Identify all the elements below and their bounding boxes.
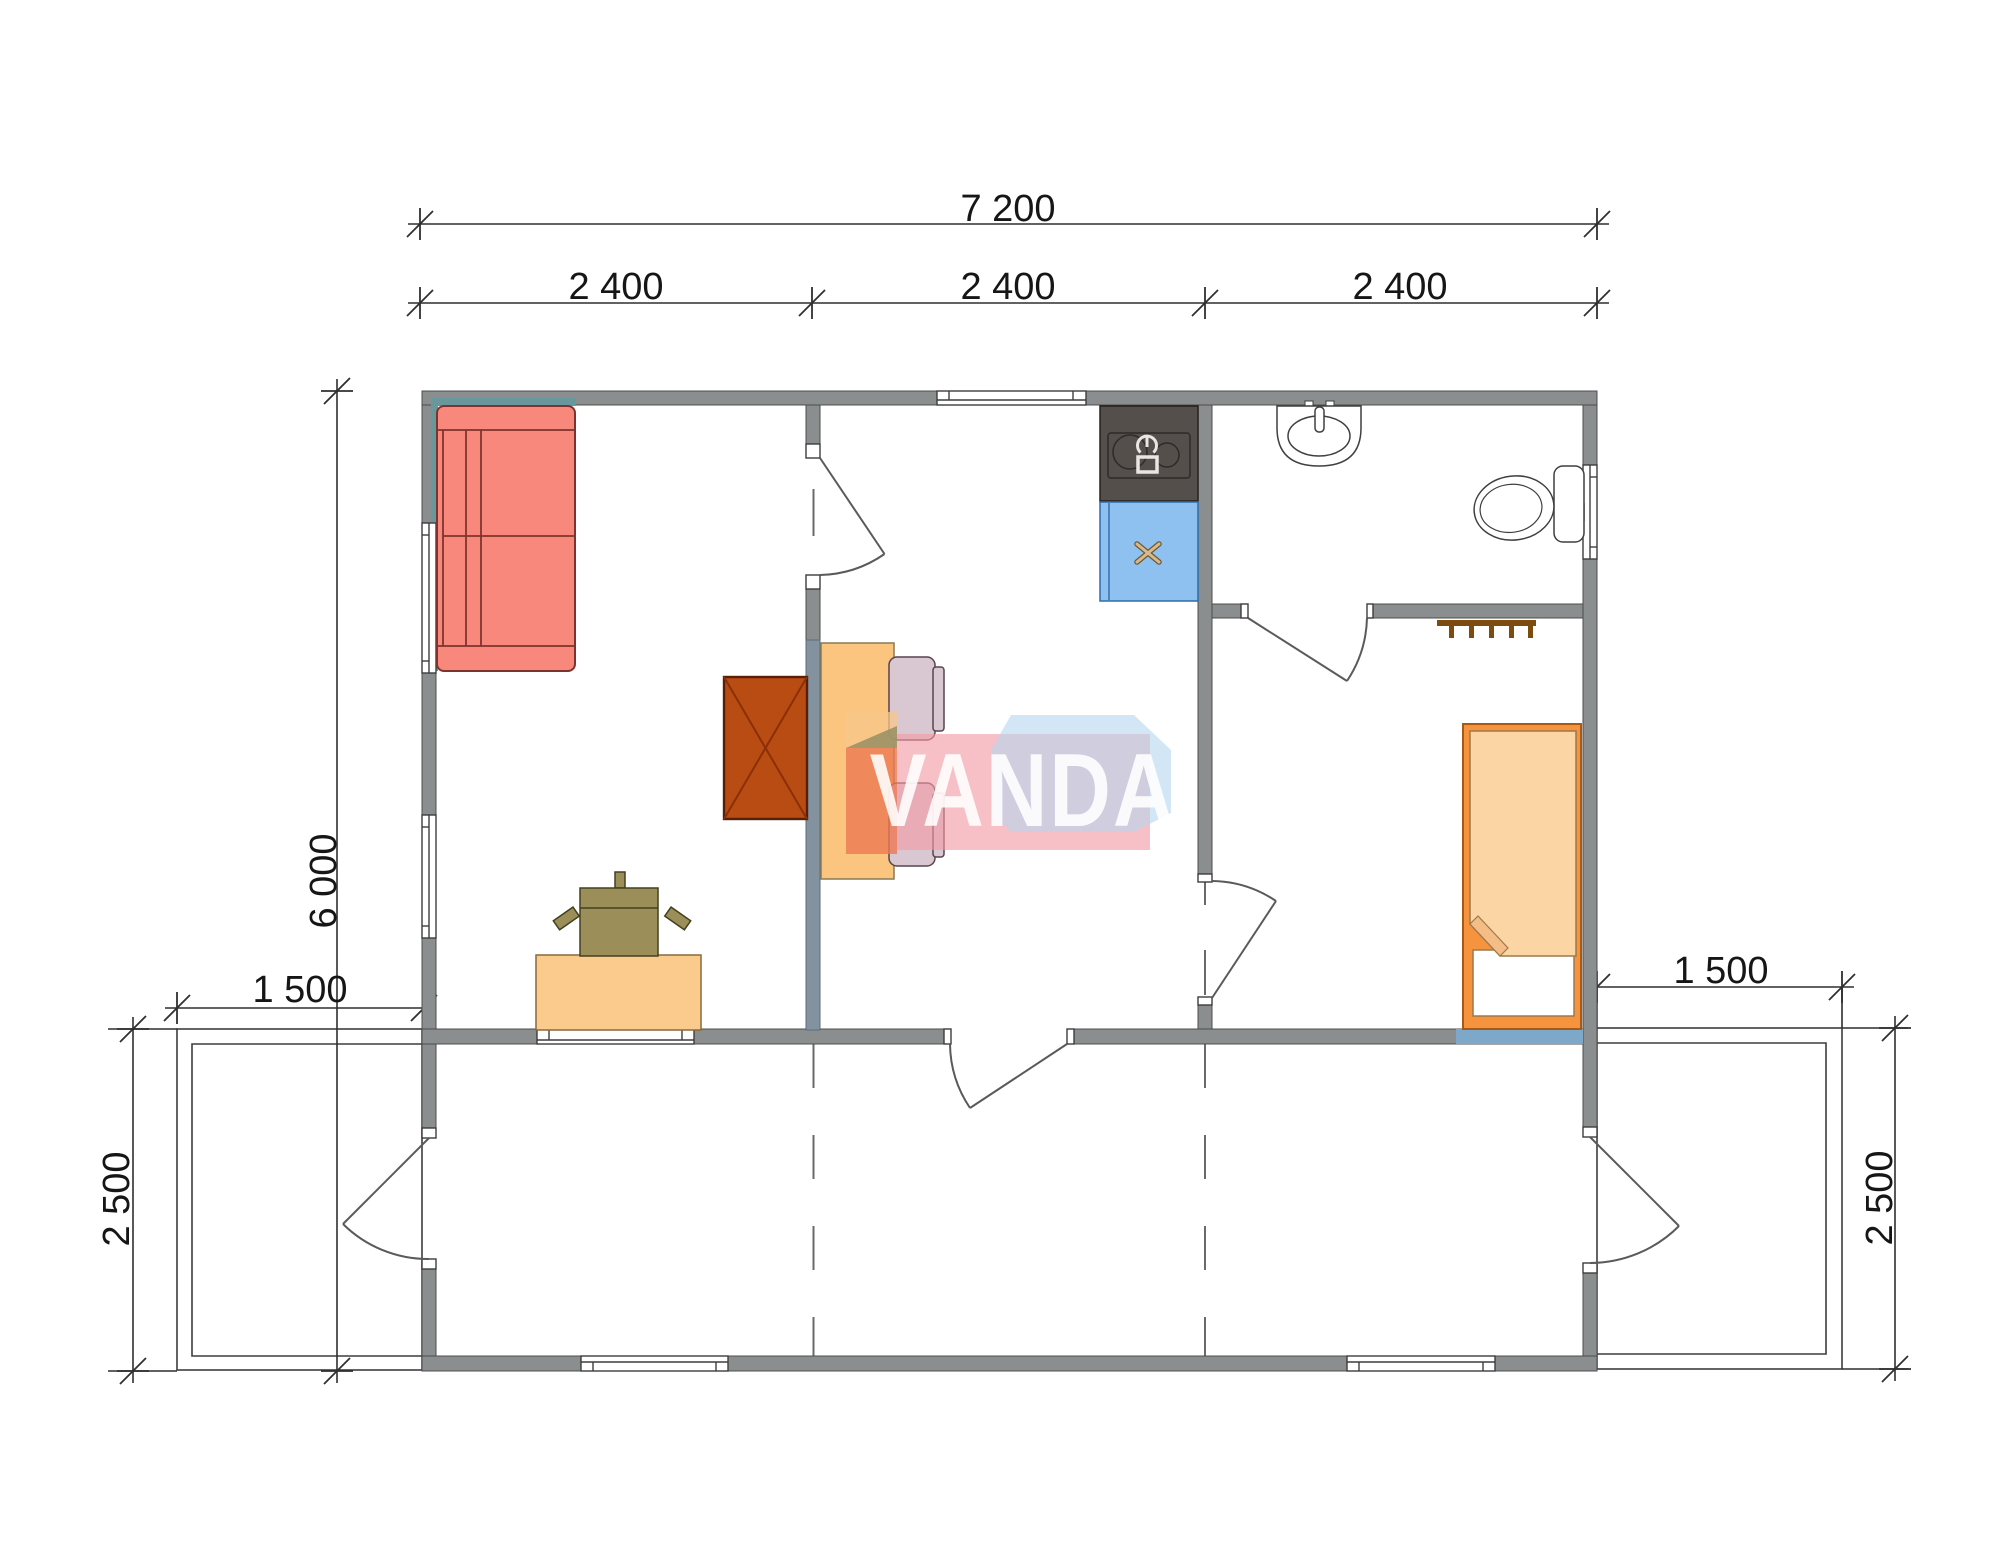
svg-text:1 500: 1 500 — [252, 969, 347, 1011]
svg-text:2 500: 2 500 — [96, 1151, 138, 1246]
svg-text:2 400: 2 400 — [960, 266, 1055, 308]
svg-text:VANDA: VANDA — [870, 733, 1177, 849]
svg-text:2 500: 2 500 — [1859, 1150, 1901, 1245]
svg-text:2 400: 2 400 — [568, 266, 663, 308]
svg-text:6 000: 6 000 — [303, 833, 345, 928]
svg-text:7 200: 7 200 — [960, 188, 1055, 230]
svg-text:1 500: 1 500 — [1673, 950, 1768, 992]
svg-text:2 400: 2 400 — [1352, 266, 1447, 308]
